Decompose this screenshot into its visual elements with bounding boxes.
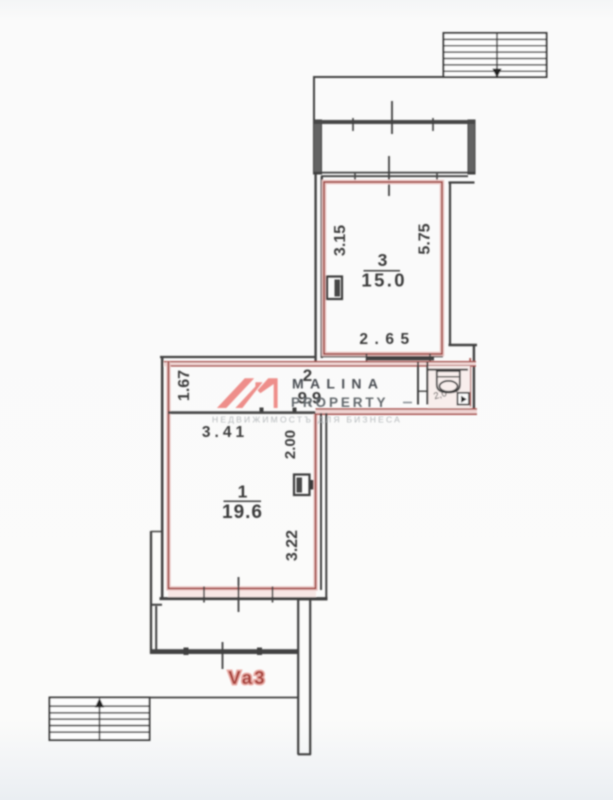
svg-text:3.15: 3.15 — [332, 225, 349, 256]
svg-text:Va3: Va3 — [228, 667, 267, 688]
svg-text:15.0: 15.0 — [361, 270, 407, 291]
svg-text:19.6: 19.6 — [222, 502, 263, 523]
svg-text:1.67: 1.67 — [176, 370, 193, 401]
svg-text:1: 1 — [238, 482, 248, 502]
svg-text:2.00: 2.00 — [282, 430, 299, 459]
svg-text:5.75: 5.75 — [417, 223, 434, 254]
svg-text:PROPERTY: PROPERTY — [291, 395, 388, 410]
svg-text:2.65: 2.65 — [359, 331, 415, 348]
svg-text:3.41: 3.41 — [202, 424, 248, 441]
svg-text:3.22: 3.22 — [284, 530, 301, 561]
svg-text:3: 3 — [378, 250, 388, 270]
svg-text:MALINA: MALINA — [292, 376, 384, 392]
svg-text:НЕДВИЖИМОСТЪ ДЛЯ БИЗНЕСА: НЕДВИЖИМОСТЪ ДЛЯ БИЗНЕСА — [212, 415, 402, 425]
